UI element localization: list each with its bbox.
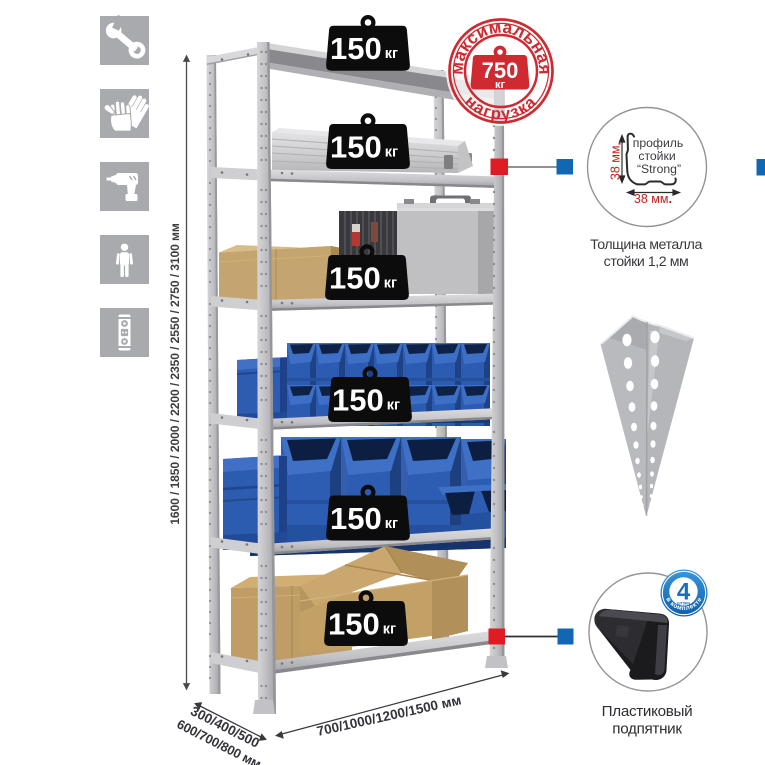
svg-text:Пластиковый: Пластиковый xyxy=(602,703,693,720)
svg-text:38 мм.: 38 мм. xyxy=(608,142,623,180)
svg-text:“Strong”: “Strong” xyxy=(637,162,681,176)
svg-text:Толщина металла: Толщина металла xyxy=(590,237,702,253)
svg-text:стойки: стойки xyxy=(638,149,675,163)
svg-text:1600 / 1850 / 2000 / 2200 / 23: 1600 / 1850 / 2000 / 2200 / 2350 / 2550 … xyxy=(168,223,182,525)
svg-text:подпятник: подпятник xyxy=(612,721,682,738)
svg-text:профиль: профиль xyxy=(633,136,683,150)
svg-text:кг: кг xyxy=(495,79,506,91)
svg-text:38 мм.: 38 мм. xyxy=(634,191,672,206)
svg-text:стойки 1,2 мм: стойки 1,2 мм xyxy=(604,254,689,270)
